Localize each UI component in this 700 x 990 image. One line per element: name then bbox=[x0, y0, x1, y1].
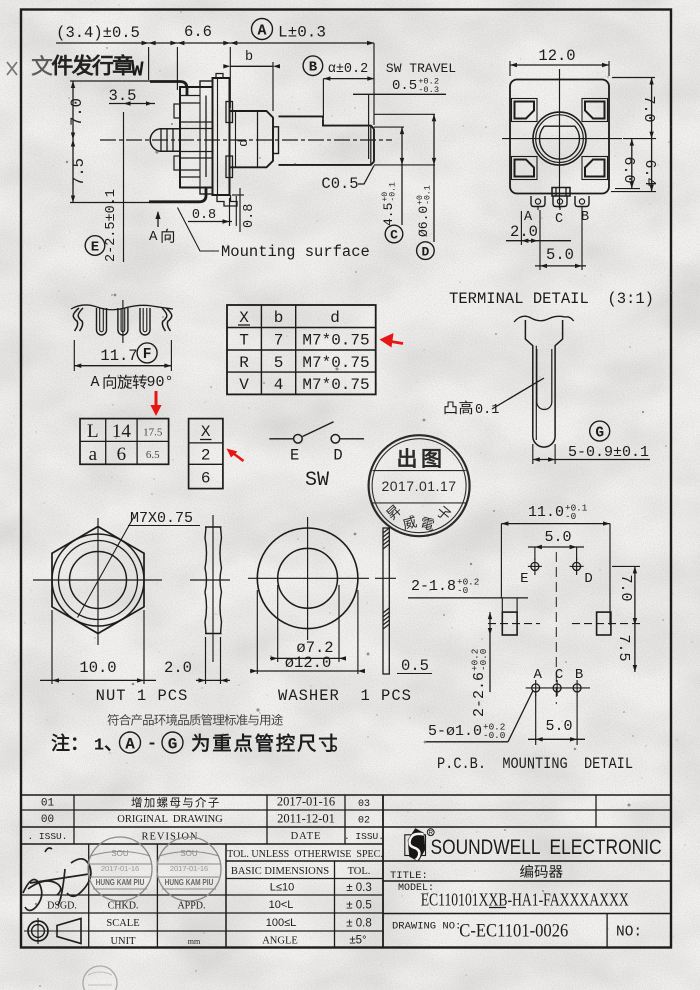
svg-text:2.0: 2.0 bbox=[164, 659, 192, 677]
svg-text:d: d bbox=[330, 309, 340, 327]
svg-text:-0: -0 bbox=[565, 511, 576, 522]
svg-text:2017-01-16: 2017-01-16 bbox=[277, 795, 335, 809]
svg-text:C0.5: C0.5 bbox=[321, 175, 358, 193]
svg-text:6: 6 bbox=[201, 470, 211, 488]
svg-text:SW: SW bbox=[305, 469, 329, 492]
svg-text:11.0: 11.0 bbox=[528, 504, 564, 521]
svg-text:G: G bbox=[168, 735, 178, 753]
svg-text:Ø6.0: Ø6.0 bbox=[416, 206, 431, 237]
svg-text:6.5: 6.5 bbox=[146, 449, 160, 461]
svg-text:M7*0.75: M7*0.75 bbox=[302, 376, 369, 394]
svg-text:0.5: 0.5 bbox=[401, 657, 429, 675]
svg-text:HUNG KAM PIU: HUNG KAM PIU bbox=[96, 877, 145, 887]
svg-text:SW TRAVEL: SW TRAVEL bbox=[386, 61, 456, 76]
svg-text:5.0: 5.0 bbox=[544, 529, 571, 546]
svg-text:A: A bbox=[125, 735, 135, 753]
svg-text:7.0: 7.0 bbox=[640, 95, 657, 122]
svg-text:12.0: 12.0 bbox=[538, 47, 575, 65]
svg-text:a: a bbox=[89, 444, 98, 465]
svg-text:5-ø1.0: 5-ø1.0 bbox=[428, 723, 482, 740]
svg-text:90°: 90° bbox=[146, 374, 173, 391]
svg-text:0.8: 0.8 bbox=[242, 204, 257, 228]
svg-text:-0.0: -0.0 bbox=[478, 649, 489, 671]
svg-text:-0.0: -0.0 bbox=[483, 730, 505, 741]
svg-text:6.4: 6.4 bbox=[641, 159, 658, 186]
svg-text:0.5: 0.5 bbox=[392, 78, 417, 94]
svg-text:D: D bbox=[333, 447, 342, 465]
svg-text:SOU: SOU bbox=[180, 849, 198, 858]
svg-text:α±0.2: α±0.2 bbox=[328, 62, 369, 77]
svg-text:0.8: 0.8 bbox=[192, 208, 216, 223]
svg-text:M7*0.75: M7*0.75 bbox=[302, 332, 369, 350]
svg-text:3.5: 3.5 bbox=[109, 87, 137, 105]
svg-text:P.C.B. MOUNTING DETAIL: P.C.B. MOUNTING DETAIL bbox=[437, 755, 633, 773]
svg-text:6.0: 6.0 bbox=[620, 156, 637, 183]
svg-text:SOU: SOU bbox=[111, 849, 129, 858]
svg-text:ORIGINAL DRAWING: ORIGINAL DRAWING bbox=[117, 814, 223, 825]
svg-text:Mounting surface: Mounting surface bbox=[221, 243, 370, 261]
svg-text:L≤10: L≤10 bbox=[270, 882, 294, 894]
svg-text:V: V bbox=[239, 376, 249, 394]
svg-text:DATE: DATE bbox=[291, 831, 322, 842]
svg-text:2-2.5±0.1: 2-2.5±0.1 bbox=[104, 189, 119, 262]
svg-text:E: E bbox=[91, 240, 99, 256]
svg-text:(3.4)±0.5: (3.4)±0.5 bbox=[56, 24, 140, 42]
svg-text:APPD.: APPD. bbox=[177, 901, 205, 912]
svg-text:. ISSU.: . ISSU. bbox=[344, 831, 384, 842]
svg-text:NO:: NO: bbox=[616, 925, 642, 941]
svg-text:2-2.6: 2-2.6 bbox=[471, 672, 488, 717]
svg-text:C: C bbox=[555, 667, 563, 683]
svg-text:C: C bbox=[390, 228, 398, 243]
svg-text:NUT 1 PCS: NUT 1 PCS bbox=[96, 687, 189, 705]
svg-text:-: - bbox=[147, 735, 157, 754]
svg-text:-0.1: -0.1 bbox=[424, 185, 433, 205]
svg-text:EC110101XXB-HA1-FAXXXAXXX: EC110101XXB-HA1-FAXXXAXXX bbox=[421, 890, 629, 910]
svg-text:X: X bbox=[201, 423, 211, 441]
svg-text:TERMINAL DETAIL (3:1): TERMINAL DETAIL (3:1) bbox=[449, 290, 654, 308]
svg-text:7.5: 7.5 bbox=[615, 634, 632, 661]
svg-text:6: 6 bbox=[117, 444, 127, 465]
svg-text:HUNG KAM PIU: HUNG KAM PIU bbox=[165, 877, 214, 887]
svg-text:2017-01-16: 2017-01-16 bbox=[101, 864, 139, 873]
svg-text:A: A bbox=[257, 22, 266, 39]
svg-text:2.0: 2.0 bbox=[510, 223, 538, 241]
svg-text:WASHER 1 PCS: WASHER 1 PCS bbox=[278, 687, 412, 705]
svg-text:L±0.3: L±0.3 bbox=[278, 24, 326, 42]
svg-text:T: T bbox=[239, 332, 249, 350]
svg-text:b: b bbox=[274, 309, 284, 327]
svg-text:C: C bbox=[555, 212, 563, 227]
svg-text:7.5: 7.5 bbox=[70, 158, 88, 186]
svg-text:TITLE:: TITLE: bbox=[390, 870, 428, 882]
svg-text:A: A bbox=[533, 667, 542, 683]
svg-text:A: A bbox=[149, 229, 158, 245]
svg-text:± 0.8: ± 0.8 bbox=[346, 918, 372, 930]
svg-text:10<L: 10<L bbox=[269, 899, 294, 911]
svg-text:4: 4 bbox=[274, 376, 284, 394]
svg-text:2: 2 bbox=[201, 447, 211, 465]
svg-text:DSGD.: DSGD. bbox=[47, 901, 77, 912]
svg-text:-0.3: -0.3 bbox=[418, 85, 439, 95]
svg-text:11.7: 11.7 bbox=[100, 347, 137, 365]
svg-text:ANGLE: ANGLE bbox=[262, 936, 298, 947]
svg-text:7: 7 bbox=[274, 332, 284, 350]
svg-text:. ISSU.: . ISSU. bbox=[28, 831, 68, 842]
svg-text:14: 14 bbox=[112, 421, 132, 442]
svg-text:BASIC DIMENSIONS: BASIC DIMENSIONS bbox=[231, 866, 329, 877]
svg-text:± 0.5: ± 0.5 bbox=[346, 900, 372, 912]
svg-text:-0.1: -0.1 bbox=[389, 182, 398, 202]
svg-text:2017.01.17: 2017.01.17 bbox=[381, 478, 456, 494]
svg-text:DRAWING NO:: DRAWING NO: bbox=[392, 921, 461, 933]
svg-text:0.1: 0.1 bbox=[475, 403, 499, 418]
svg-text:D: D bbox=[584, 571, 592, 587]
svg-text:E: E bbox=[290, 447, 299, 465]
svg-text:17.5: 17.5 bbox=[143, 427, 163, 439]
svg-text:M7X0.75: M7X0.75 bbox=[130, 510, 193, 527]
svg-text:b: b bbox=[245, 50, 253, 65]
svg-text:-0: -0 bbox=[457, 585, 468, 596]
svg-text:G: G bbox=[595, 425, 604, 441]
svg-text:UNIT: UNIT bbox=[110, 936, 136, 947]
svg-text:6.6: 6.6 bbox=[184, 23, 212, 41]
svg-text:2011-12-01: 2011-12-01 bbox=[277, 812, 335, 826]
svg-text:10.0: 10.0 bbox=[79, 659, 116, 677]
svg-text:SCALE: SCALE bbox=[106, 918, 139, 929]
svg-text:W: W bbox=[131, 60, 144, 83]
svg-text:±5°: ±5° bbox=[349, 935, 366, 947]
svg-text:R: R bbox=[239, 354, 249, 372]
svg-text:5: 5 bbox=[274, 354, 284, 372]
svg-text:7.0: 7.0 bbox=[617, 574, 634, 601]
svg-text:E: E bbox=[520, 571, 528, 587]
svg-text:CHKD.: CHKD. bbox=[108, 901, 139, 912]
svg-text:L: L bbox=[87, 421, 99, 442]
svg-text:00: 00 bbox=[41, 814, 54, 826]
svg-text:SOUNDWELL ELECTRONIC: SOUNDWELL ELECTRONIC bbox=[431, 836, 662, 859]
svg-text:5.0: 5.0 bbox=[546, 246, 574, 264]
svg-text:TOL.: TOL. bbox=[348, 866, 371, 877]
svg-text:02: 02 bbox=[358, 816, 370, 827]
svg-text:B: B bbox=[575, 667, 583, 683]
svg-text:C-EC1101-0026: C-EC1101-0026 bbox=[459, 921, 568, 942]
svg-text:B: B bbox=[309, 60, 318, 76]
svg-text:7.0: 7.0 bbox=[68, 98, 86, 126]
svg-text:100≤L: 100≤L bbox=[266, 917, 297, 929]
svg-text:2-1.8: 2-1.8 bbox=[411, 578, 456, 595]
svg-text:5-0.9±0.1: 5-0.9±0.1 bbox=[568, 444, 649, 461]
svg-text:03: 03 bbox=[358, 799, 370, 810]
svg-text:01: 01 bbox=[41, 798, 55, 810]
svg-text:X: X bbox=[239, 309, 249, 327]
svg-text:D: D bbox=[421, 244, 429, 259]
svg-text:2017-01-16: 2017-01-16 bbox=[170, 864, 208, 873]
svg-text:ø12.0: ø12.0 bbox=[285, 654, 332, 672]
svg-text:5.0: 5.0 bbox=[545, 718, 572, 735]
svg-text:F: F bbox=[143, 347, 152, 363]
svg-text:mm: mm bbox=[188, 937, 201, 946]
svg-text:A: A bbox=[90, 374, 99, 391]
svg-text:± 0.3: ± 0.3 bbox=[346, 882, 372, 894]
svg-text:1: 1 bbox=[94, 737, 104, 756]
svg-text:4.5: 4.5 bbox=[381, 203, 396, 226]
svg-text:TOL. UNLESS OTHERWISE SPEC.: TOL. UNLESS OTHERWISE SPEC. bbox=[227, 849, 383, 860]
